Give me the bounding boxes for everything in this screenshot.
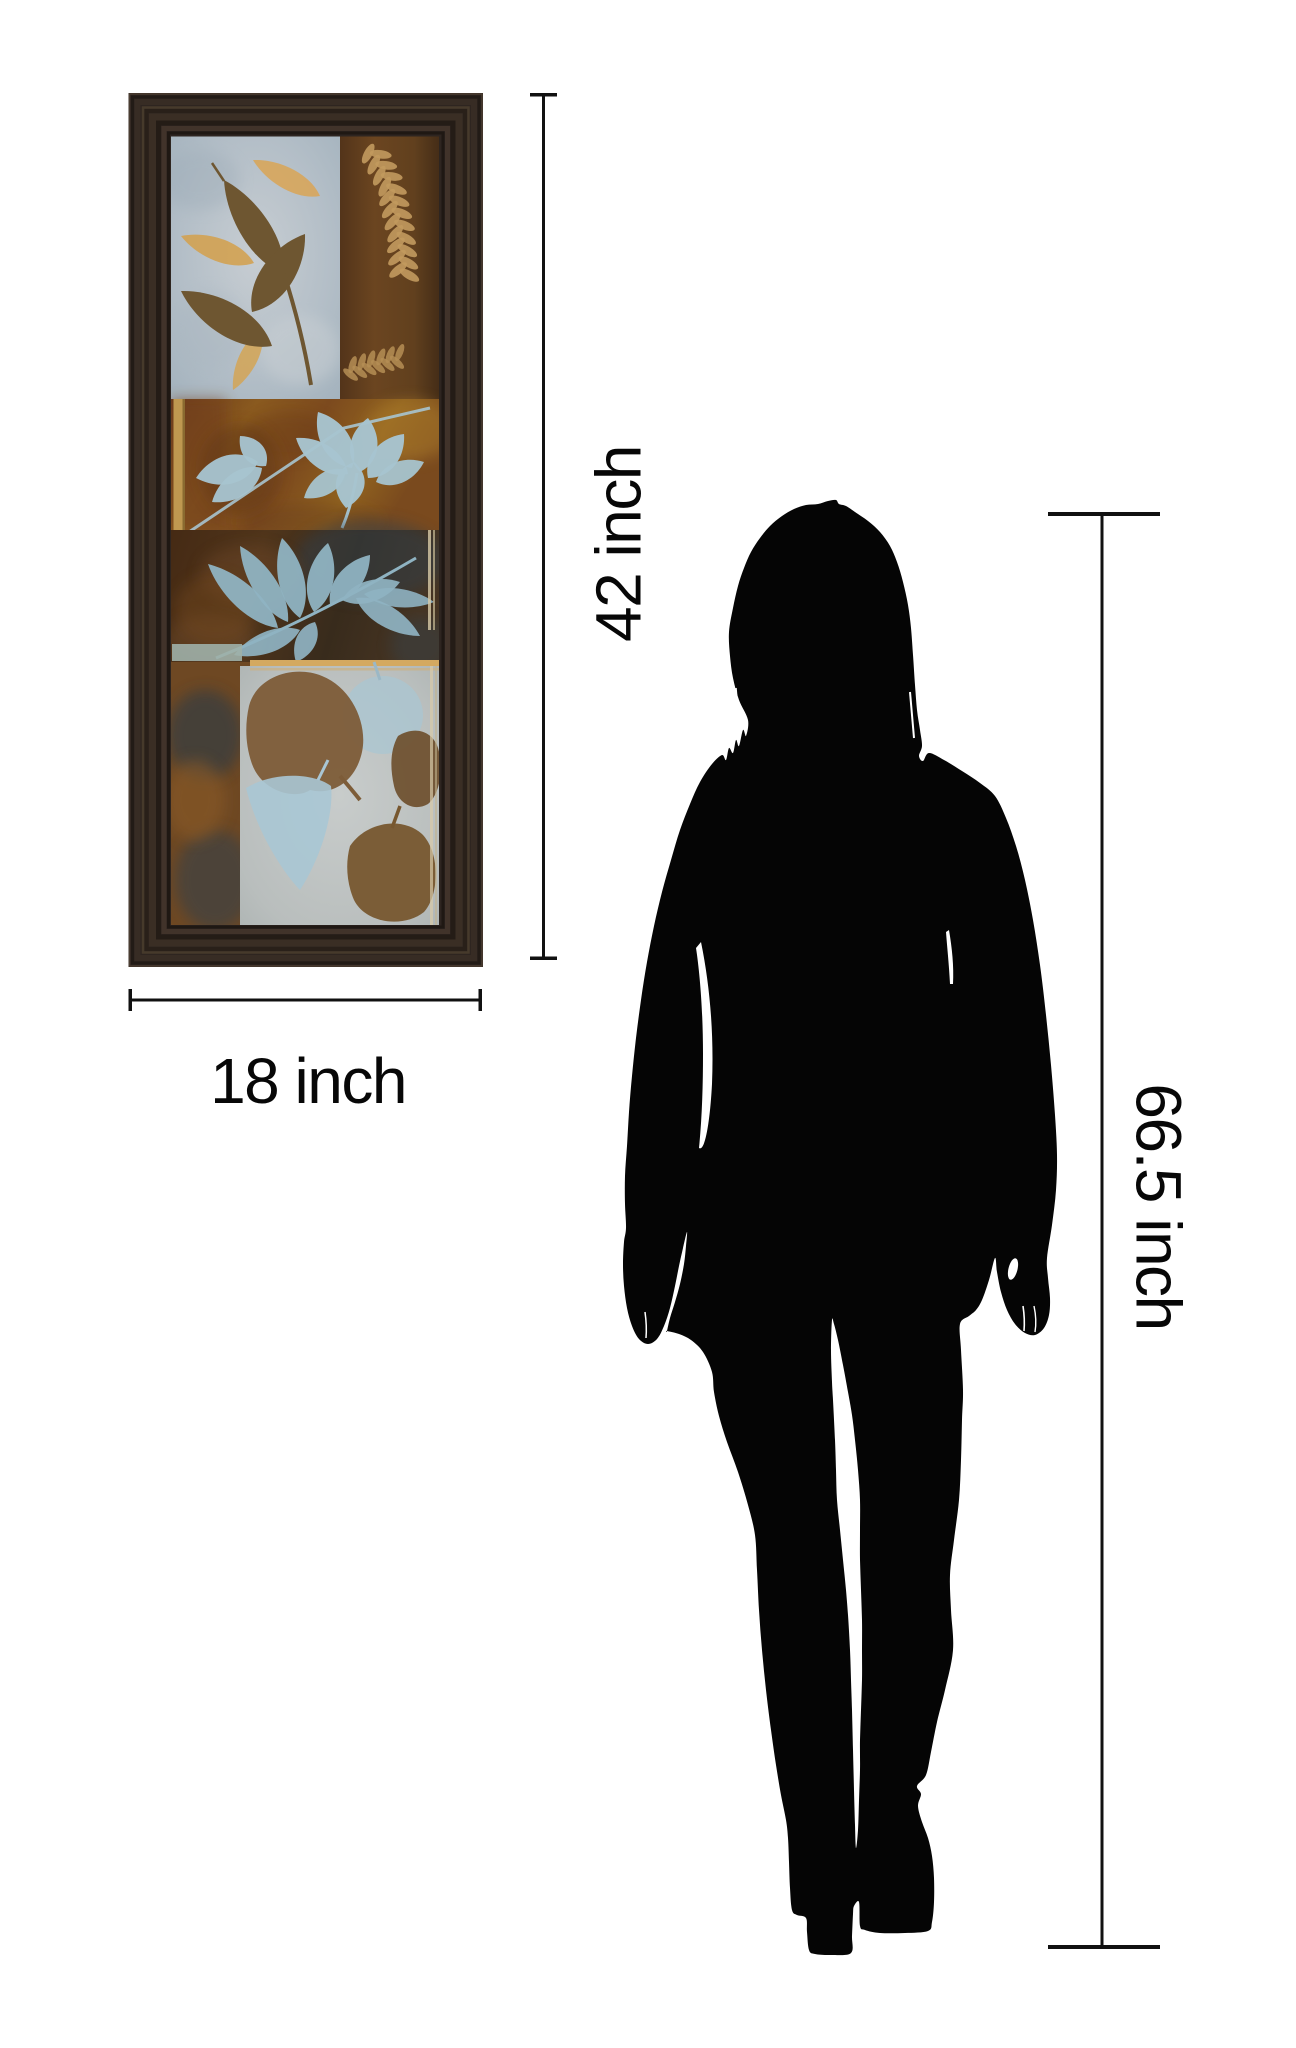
svg-text:42 inch: 42 inch <box>583 446 655 642</box>
svg-text:66.5 inch: 66.5 inch <box>1123 1083 1195 1329</box>
svg-text:18 inch: 18 inch <box>210 1045 406 1117</box>
